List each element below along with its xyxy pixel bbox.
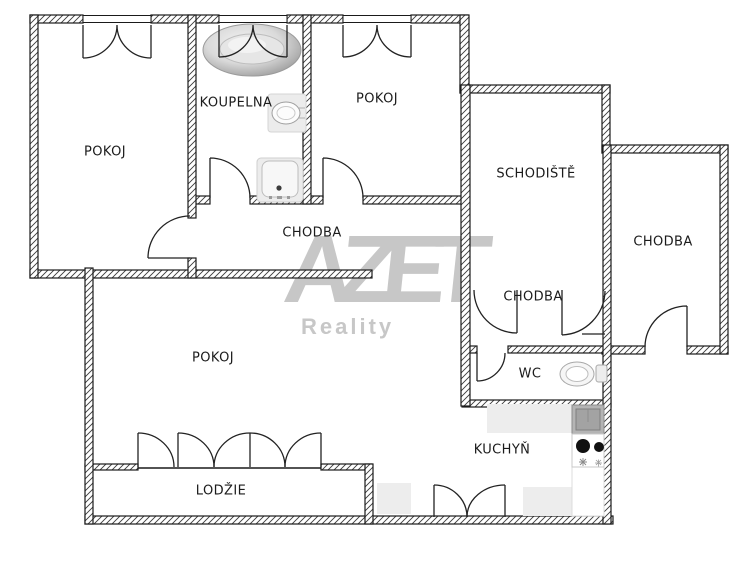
kitchen-counter: [377, 404, 604, 516]
door-koupelna: [210, 158, 250, 198]
window-pokoj-top-middle: [343, 25, 411, 57]
door-pokoj-top-middle: [323, 158, 363, 198]
room-label-pokoj-large: POKOJ: [192, 351, 234, 366]
kitchen-sink-icon: [572, 405, 604, 434]
floor-plan-drawing: [0, 0, 749, 562]
floor-plan: AZET Reality: [0, 0, 749, 562]
room-label-wc: WC: [519, 367, 542, 382]
washbasin-icon: [268, 94, 306, 132]
door-lodzie-set: [138, 433, 321, 467]
door-entry-right: [562, 290, 605, 335]
room-label-pokoj-top-middle: POKOJ: [356, 92, 398, 107]
shower-icon: [257, 158, 303, 202]
room-label-lodzie: LODŽIE: [196, 484, 246, 499]
room-label-kuchyn: KUCHYŇ: [474, 443, 531, 458]
room-label-chodba-middle: CHODBA: [282, 226, 341, 241]
room-label-koupelna: KOUPELNA: [200, 96, 273, 111]
toilet-icon: [560, 362, 607, 386]
room-label-chodba-entry: CHODBA: [503, 290, 562, 305]
stove-icon: [572, 434, 604, 467]
room-label-schodiste: SCHODIŠTĚ: [496, 167, 575, 182]
door-pokoj-top-left: [148, 216, 190, 258]
door-kuchyn-french: [434, 485, 505, 517]
room-label-chodba-right: CHODBA: [633, 235, 692, 250]
window-openings: [83, 16, 411, 23]
window-pokoj-top-left: [83, 25, 151, 58]
door-wc: [477, 353, 505, 381]
room-label-pokoj-top-left: POKOJ: [84, 145, 126, 160]
door-chodba-right: [645, 306, 687, 347]
